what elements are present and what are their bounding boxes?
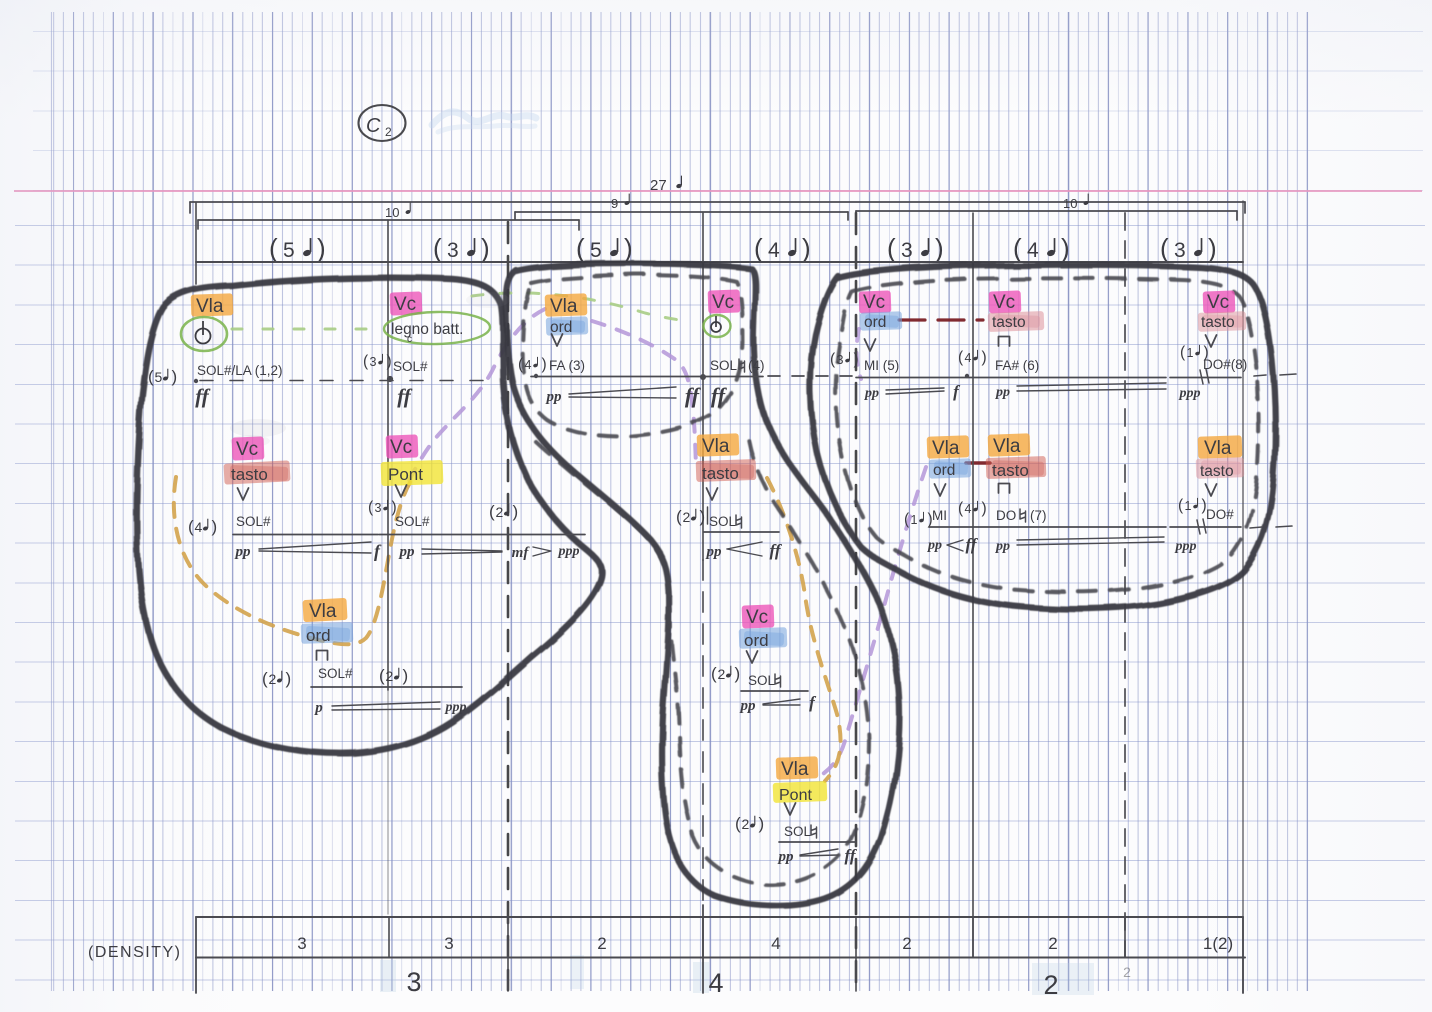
svg-text:4: 4 [708,968,723,998]
svg-text:SOL#/LA (1,2): SOL#/LA (1,2) [197,363,283,378]
svg-text:DO: DO [996,508,1016,523]
svg-text:mf: mf [512,545,531,561]
svg-text:ppp: ppp [1175,539,1197,554]
svg-text:ff: ff [685,383,702,408]
svg-text:Vc: Vc [863,292,885,313]
svg-text:ord: ord [744,631,769,650]
svg-text:(: ( [904,511,910,528]
svg-text:tasto: tasto [992,461,1029,480]
svg-text:5: 5 [590,239,602,262]
svg-text:(: ( [1160,233,1169,263]
svg-text:Vc: Vc [390,437,412,458]
svg-text:tasto: tasto [231,465,268,484]
svg-text:3: 3 [837,353,844,367]
svg-text:2: 2 [1043,970,1058,1000]
svg-text:ff: ff [397,384,413,408]
svg-text:1: 1 [1187,346,1194,360]
svg-text:f: f [374,541,382,561]
svg-text:4: 4 [195,519,203,535]
svg-text:(: ( [363,353,369,370]
svg-text:): ) [403,666,409,685]
svg-text:ord: ord [933,462,955,479]
svg-text:(: ( [676,507,682,526]
svg-text:(: ( [958,500,964,517]
svg-text:3: 3 [297,934,306,953]
svg-text:pp: pp [739,698,757,714]
svg-text:4: 4 [965,351,972,365]
svg-text:(7): (7) [1030,508,1047,523]
svg-text:DO#: DO# [1206,507,1234,522]
svg-text:): ) [481,233,490,263]
svg-text:): ) [802,233,811,263]
svg-text:SOL#: SOL# [318,666,353,681]
svg-text:1: 1 [911,513,918,527]
svg-text:Vla: Vla [196,296,224,317]
svg-text:SOL: SOL [710,358,738,373]
svg-text:pp: pp [995,539,1010,554]
svg-text:3: 3 [370,355,377,369]
svg-text:pp: pp [995,385,1010,400]
svg-text:(: ( [368,499,374,516]
svg-text:): ) [387,353,392,370]
svg-text:Vla: Vla [702,436,730,457]
svg-text:2: 2 [1048,934,1057,953]
svg-text:Vla: Vla [1204,438,1232,459]
svg-text:): ) [935,233,944,263]
svg-text:pp: pp [545,389,563,405]
svg-text:Vla: Vla [993,436,1021,457]
svg-text:FA (3): FA (3) [549,358,585,373]
svg-text:): ) [1061,233,1070,263]
svg-text:): ) [1208,233,1217,263]
svg-text:4: 4 [768,239,780,262]
svg-text:Pont: Pont [779,787,812,804]
svg-text:tasto: tasto [1200,463,1234,480]
svg-text:ord: ord [864,314,886,331]
svg-text:(: ( [379,666,385,685]
svg-text:): ) [317,233,326,263]
svg-text:pp: pp [398,544,416,560]
svg-text:f: f [953,382,961,401]
svg-text:SOL#: SOL# [236,514,271,529]
svg-text:pp: pp [234,544,252,560]
svg-text:Vla: Vla [781,759,809,780]
svg-text:3: 3 [1174,239,1186,262]
svg-text:3: 3 [901,239,913,262]
svg-text:(: ( [262,669,268,688]
svg-text:Vla: Vla [932,438,960,459]
svg-text:(: ( [1178,497,1184,514]
svg-text:27: 27 [650,177,667,194]
svg-text:Vc: Vc [236,439,258,460]
svg-text:Pont: Pont [388,465,423,484]
svg-text:1: 1 [1185,499,1192,513]
svg-text:ff: ff [965,535,978,554]
svg-text:Vc: Vc [394,294,416,315]
svg-text:5: 5 [155,369,163,385]
svg-text:): ) [982,500,987,517]
svg-text:SOL: SOL [784,824,812,839]
svg-text:(: ( [518,356,524,373]
svg-text:(: ( [433,233,442,263]
svg-text:f: f [809,693,817,712]
svg-text:): ) [286,669,292,688]
svg-text:(4): (4) [748,358,765,373]
svg-text:): ) [172,367,178,386]
svg-text:DO#(8): DO#(8) [1203,357,1247,372]
svg-text:2: 2 [385,125,392,139]
svg-text:SOL#: SOL# [393,359,428,374]
svg-text:ppp: ppp [445,700,467,715]
svg-text:(: ( [711,664,717,683]
svg-text:): ) [854,351,859,368]
svg-text:ff: ff [769,541,782,560]
svg-text:(: ( [148,367,154,386]
svg-text:c: c [407,334,412,345]
svg-text:3: 3 [447,239,459,262]
svg-text:3: 3 [375,501,382,515]
svg-text:3: 3 [406,967,421,997]
svg-text:4: 4 [965,502,972,516]
svg-text:pp: pp [864,386,879,401]
svg-text:(: ( [754,233,763,263]
svg-text:2: 2 [597,934,606,953]
svg-text:): ) [700,507,706,526]
svg-text:9: 9 [611,196,618,211]
svg-text:Vla: Vla [550,296,578,317]
svg-text:): ) [212,517,218,536]
svg-text:4: 4 [525,358,532,372]
svg-text:tasto: tasto [702,464,739,483]
svg-text:(: ( [958,349,964,366]
svg-text:(: ( [576,233,585,263]
svg-text:(: ( [188,517,194,536]
svg-text:(: ( [735,814,741,833]
svg-text:(: ( [830,351,836,368]
svg-text:): ) [735,664,741,683]
svg-text:): ) [624,233,633,263]
svg-text:Vc: Vc [712,292,734,313]
svg-text:Vc: Vc [746,607,768,628]
svg-text:2: 2 [386,668,394,684]
svg-text:ord: ord [550,319,572,336]
svg-text:(: ( [269,233,278,263]
svg-text:2: 2 [902,934,911,953]
svg-text:pp: pp [777,849,795,865]
svg-text:): ) [542,356,547,373]
svg-text:Vc: Vc [1207,292,1229,313]
svg-text:(: ( [489,502,495,521]
svg-text:C: C [366,115,381,137]
svg-text:4: 4 [771,934,780,953]
svg-text:ff: ff [195,384,211,408]
svg-text:10: 10 [1063,196,1077,211]
svg-text:2: 2 [496,504,504,520]
svg-text:SOL#: SOL# [395,514,430,529]
svg-text:10: 10 [385,205,399,220]
svg-text:Vla: Vla [309,601,337,622]
svg-text:2: 2 [269,671,277,687]
svg-text:): ) [982,349,987,366]
svg-text:tasto: tasto [992,314,1026,331]
svg-text:): ) [759,814,765,833]
svg-text:ord: ord [306,626,331,645]
svg-text:5: 5 [283,239,295,262]
svg-text:(: ( [1013,233,1022,263]
svg-text:4: 4 [1027,239,1039,262]
svg-text:SOL: SOL [709,514,737,529]
svg-text:p: p [313,700,323,716]
svg-text:MI: MI [932,508,947,523]
svg-text:2: 2 [742,816,750,832]
svg-text:tasto: tasto [1201,314,1235,331]
svg-text:3: 3 [444,934,453,953]
svg-text:2: 2 [683,509,691,525]
svg-text:FA# (6): FA# (6) [995,358,1039,373]
svg-text:SOL: SOL [748,673,776,688]
svg-text:MI (5): MI (5) [864,358,899,373]
svg-text:ppp: ppp [1179,386,1201,401]
svg-text:pp: pp [927,538,942,553]
svg-text:2: 2 [1123,964,1131,980]
svg-text:ppp: ppp [558,544,580,559]
svg-text:Vc: Vc [993,292,1015,313]
svg-text:(DENSITY): (DENSITY) [88,944,182,961]
svg-text:(: ( [887,233,896,263]
svg-text:(: ( [1180,344,1186,361]
svg-text:1(2): 1(2) [1203,934,1233,953]
svg-text:2: 2 [718,666,726,682]
svg-text:legno batt.: legno batt. [391,321,463,338]
svg-text:pp: pp [705,544,723,560]
svg-text:): ) [513,502,519,521]
